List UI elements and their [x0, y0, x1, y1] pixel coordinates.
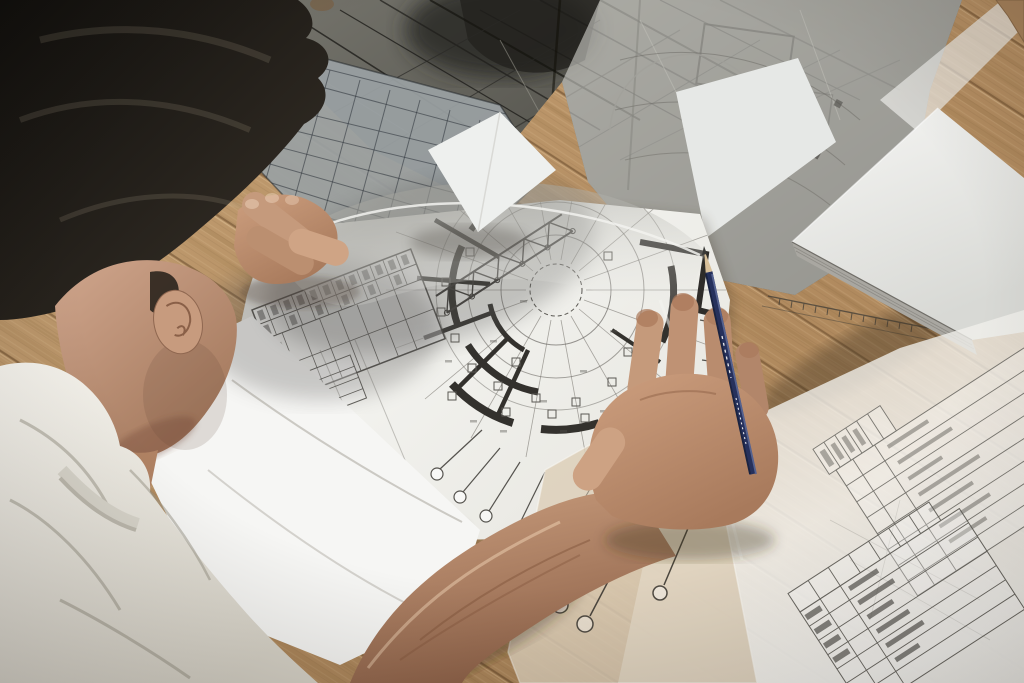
photo-stage: [0, 0, 1024, 683]
vignette: [0, 0, 1024, 683]
photo-architect-blueprints: [0, 0, 1024, 683]
